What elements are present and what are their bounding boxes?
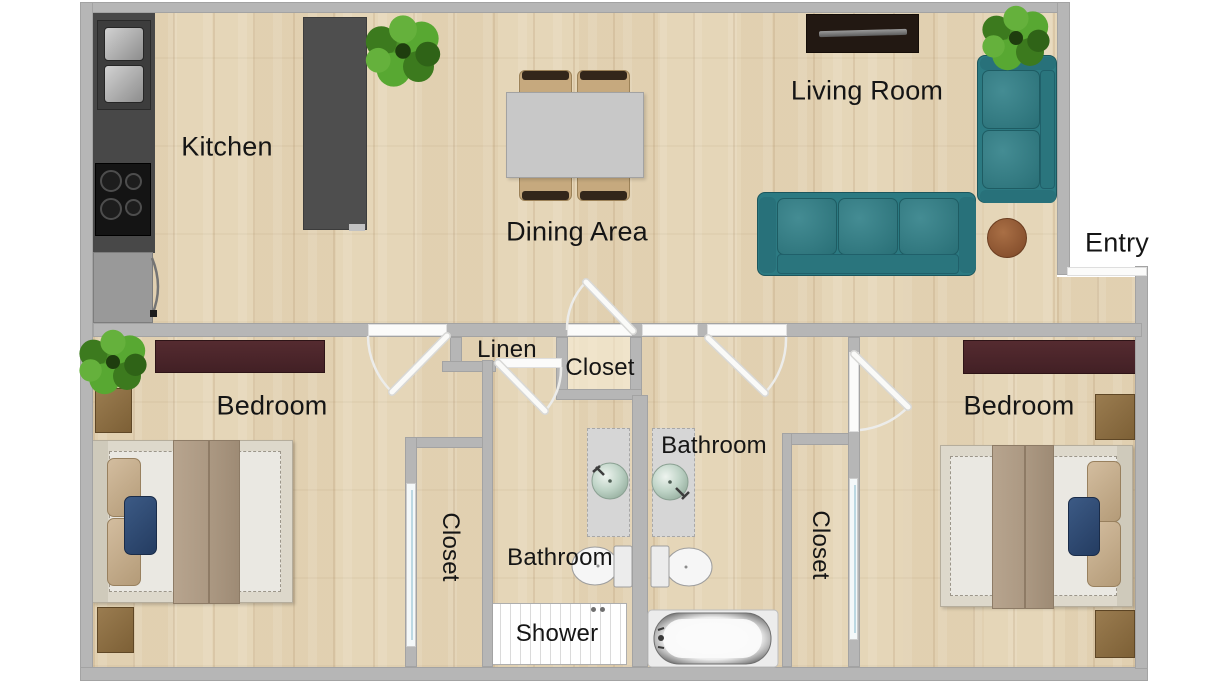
burner-icon [100,198,122,220]
doorway-left-bedroom [368,324,447,336]
double-bed [940,445,1133,607]
bedroom-left-label: Bedroom [217,391,328,422]
doorway-entry [1067,267,1147,276]
shower-label: Shower [516,620,599,648]
burner-icon [125,199,142,216]
entry-label: Entry [1085,228,1149,259]
nightstand [95,388,132,433]
kitchen-label: Kitchen [181,132,272,163]
floorplan: Kitchen Dining Area Living Room Entry Be… [0,0,1227,683]
hall-closet-label: Closet [565,354,634,382]
burner-icon [125,173,142,190]
dresser [155,340,325,373]
bathroom-left-label: Bathroom [507,544,613,572]
side-table [987,218,1027,258]
bathroom-right-label: Bathroom [661,432,767,460]
wall-hall-closet-bottom [556,389,642,400]
wall-top [80,2,1070,13]
sink-basin-bottom [104,65,144,103]
sliding-closet-door-right [849,478,858,640]
tv-console [806,14,919,53]
nightstand [97,607,134,653]
dining-table [506,92,644,178]
sink-basin-top [104,27,144,61]
wall-right-closet-left [782,433,792,667]
loveseat [977,55,1057,203]
burner-icon [100,170,122,192]
doorway-hall [642,324,698,336]
wall-bottom [80,667,1148,681]
dining-area-label: Dining Area [506,217,648,248]
linen-label: Linen [477,336,537,364]
closet-left-label: Closet [436,512,464,581]
refrigerator [93,252,153,323]
nightstand [1095,394,1135,440]
floor-entry-nook [1057,277,1135,323]
wall-left [80,2,93,681]
living-room-label: Living Room [791,76,943,107]
wall-right-upper [1057,2,1070,275]
closet-right-label: Closet [806,510,834,579]
doorway-right-bedroom [849,352,859,432]
wall-between-bathrooms [632,395,648,667]
sliding-closet-door-left [406,483,416,647]
island-sink-tab [349,224,365,231]
double-bed [92,440,293,603]
nightstand [1095,610,1135,658]
kitchen-island [303,17,367,230]
bedroom-right-label: Bedroom [964,391,1075,422]
wall-left-bathroom-left [482,360,493,667]
doorway-hall-closet [567,324,632,336]
wall-right-closet-top [782,433,858,445]
doorway-right-bathroom [707,324,787,336]
dresser [963,340,1137,374]
wall-left-closet-top [405,437,487,448]
sofa [757,192,976,276]
bathroom-vanity [587,428,630,537]
